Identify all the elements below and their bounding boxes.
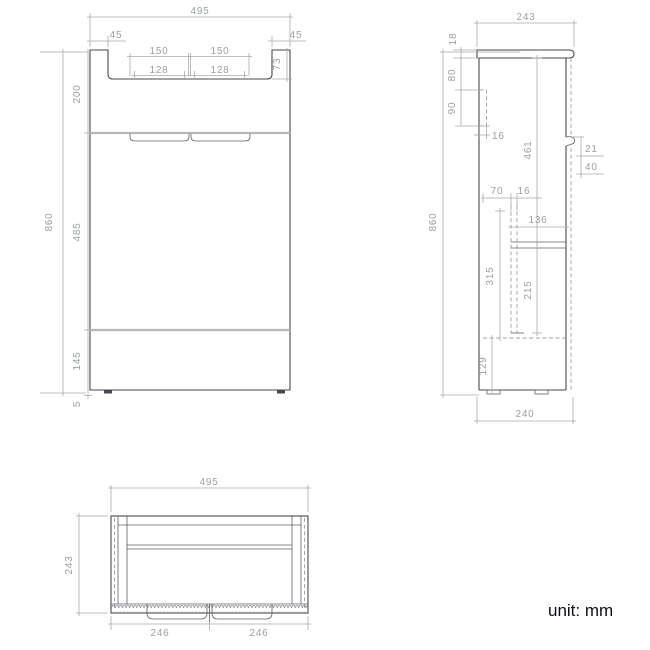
front-handle-left [130,134,189,141]
dim-side-rail-back-offset: 70 [491,186,504,197]
dim-side-rail-width: 16 [518,186,531,197]
dim-front-overall-height: 860 [44,212,55,231]
dim-side-base-height: 129 [478,356,489,375]
front-handle-right [191,134,250,141]
side-view: 243 18 80 90 16 860 461 21 40 [428,12,604,424]
dim-top-overall-depth: 243 [64,555,75,574]
side-countertop [477,50,574,58]
dim-front-recess-inner-right: 128 [210,65,229,76]
top-view: 495 243 246 246 [64,477,311,639]
drawing-page: 495 45 45 150 150 128 128 73 860 [0,0,650,650]
dim-side-overall-depth: 243 [516,12,535,23]
dim-side-overall-height: 860 [428,212,439,231]
dim-front-side-panel-left: 45 [110,30,123,41]
side-foot-back [487,390,500,394]
dim-front-top-section: 200 [72,84,83,103]
dim-top-overall-width: 495 [199,477,218,488]
dim-side-countertop-thickness: 18 [448,33,459,46]
dim-side-shelf-depth: 136 [528,215,547,226]
top-outline [111,516,308,613]
dim-top-door-right-width: 246 [249,628,268,639]
dim-side-bracket-top-offset: 80 [447,69,458,82]
unit-label: unit: mm [548,601,613,621]
front-view: 495 45 45 150 150 128 128 73 860 [40,6,306,407]
dim-front-recess-outer-left: 150 [149,46,168,57]
side-wall-bracket-hidden [480,90,487,126]
dim-side-handle-lip-depth: 21 [585,144,598,155]
dim-side-bottom-depth: 240 [515,409,534,420]
dim-side-bracket-height: 90 [447,102,458,115]
dim-side-shelf-to-rail: 215 [523,280,534,299]
side-foot-front [535,390,548,394]
dim-side-handle-zone-height: 40 [585,162,598,173]
dim-front-top-recess-depth: 73 [272,58,283,71]
dim-front-recess-outer-right: 150 [210,46,229,57]
side-handle-lip [566,137,575,146]
dim-front-middle-section: 485 [72,222,83,241]
dim-front-recess-inner-left: 128 [149,65,168,76]
dim-top-door-left-width: 246 [150,628,169,639]
technical-drawing: 495 45 45 150 150 128 128 73 860 [0,0,650,650]
front-foot-right [277,390,285,394]
dim-front-overall-width: 495 [190,6,209,17]
dim-side-rail-length: 315 [485,266,496,285]
front-cabinet-outline [90,50,290,390]
dim-side-door-height: 461 [523,140,534,159]
dim-front-foot-height: 5 [72,401,83,407]
dim-front-side-panel-right: 45 [290,30,303,41]
dim-front-bottom-section: 145 [72,351,83,370]
front-foot-left [104,390,112,394]
dim-side-bracket-width: 16 [492,131,505,142]
